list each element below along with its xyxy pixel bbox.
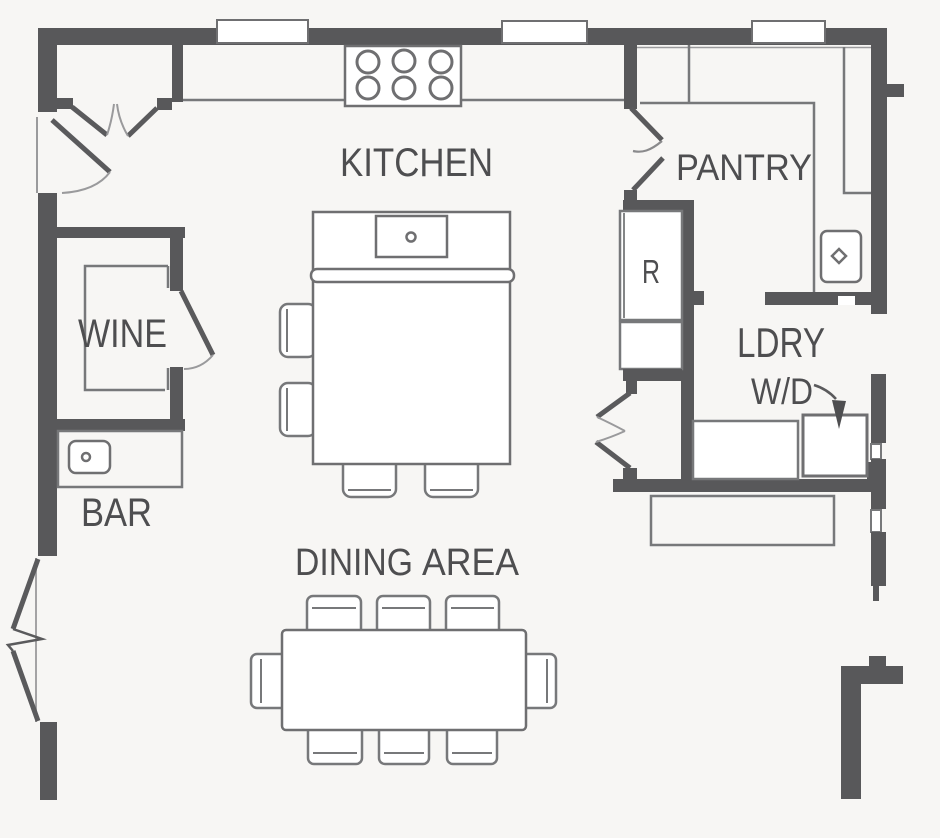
svg-text:WINE: WINE xyxy=(78,312,167,356)
svg-text:BAR: BAR xyxy=(81,491,152,535)
svg-text:R: R xyxy=(642,253,660,290)
svg-text:W/D: W/D xyxy=(751,371,813,412)
svg-text:PANTRY: PANTRY xyxy=(676,147,812,188)
svg-text:KITCHEN: KITCHEN xyxy=(340,141,493,185)
svg-text:LDRY: LDRY xyxy=(737,319,825,366)
svg-text:DINING: DINING xyxy=(295,542,413,584)
svg-text:AREA: AREA xyxy=(422,542,520,584)
